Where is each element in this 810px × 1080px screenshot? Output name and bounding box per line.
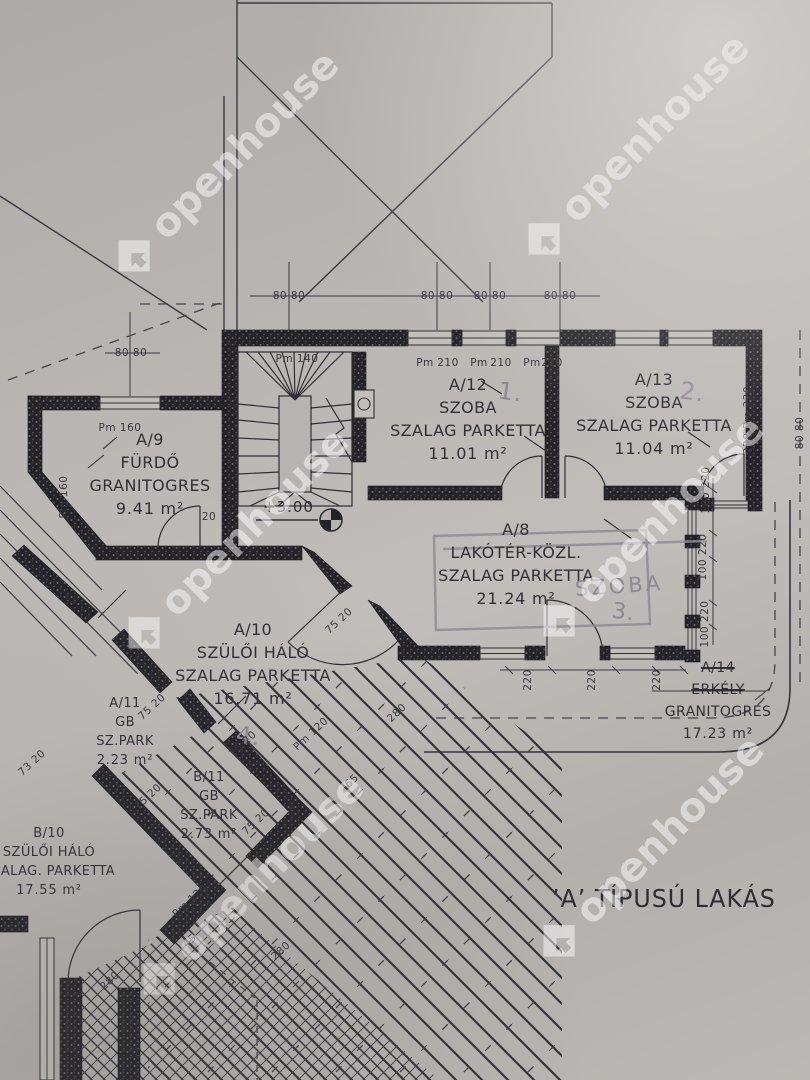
dimension-label: 80 80 [474, 290, 507, 302]
dimension-label: Pm 120 [291, 715, 331, 753]
pencil-note-1: 1. [496, 376, 525, 407]
dimension-label: 220 [522, 669, 534, 691]
room-id: A/10 [160, 618, 346, 641]
room-name: GB [82, 713, 168, 732]
room-finish: SZ.PARK [166, 806, 252, 825]
plan-title: ’A’ TÍPUSÚ LAKÁS [552, 884, 790, 913]
dimension-label: Pm [523, 357, 541, 369]
dimension-label: 100 220 [699, 601, 711, 648]
dimension-label: Pm 120 [170, 882, 210, 920]
openhouse-logo-icon [512, 206, 577, 271]
dimension-label: Pm [416, 357, 434, 369]
room-label-b11: B/11 GB SZ.PARK 2.73 m² [166, 768, 252, 844]
room-id: A/8 [428, 518, 604, 541]
room-name: FÜRDŐ [52, 451, 248, 474]
dimension-label: 45 [181, 932, 200, 951]
dimension-label: 280 [385, 701, 409, 724]
dimension-label: 220 [586, 669, 598, 691]
dimension-label: 210 [490, 357, 512, 369]
dimension-label: Pm 160 [99, 422, 142, 434]
dimension-label: 210 [541, 357, 563, 369]
room-name: SZOBA [574, 391, 734, 414]
dimension-label: Pm 160 [58, 476, 70, 519]
openhouse-logo-icon [102, 223, 167, 288]
watermark-text: openhouse [551, 25, 758, 232]
pencil-note-3: 3. [610, 599, 636, 627]
dimension-label: 65 [343, 772, 362, 791]
room-area: 16.71 m² [160, 687, 346, 710]
dimension-label: 220 [651, 669, 663, 691]
openhouse-logo-icon [127, 946, 192, 1011]
room-label-a14: A/14 ERKÉLY GRANITOGRES 17.23 m² [650, 657, 786, 745]
dimension-label: 80 80 [273, 290, 306, 302]
room-name: GB [166, 787, 252, 806]
watermark-text: openhouse [141, 42, 348, 249]
watermark: openhouse [527, 727, 774, 974]
room-label-a13: A/13 SZOBA SZALAG PARKETTA 11.04 m² [574, 368, 734, 460]
dimension-label: 80 80 [544, 290, 577, 302]
room-name: SZOBA [388, 396, 548, 419]
room-id: A/9 [52, 428, 248, 451]
room-label-a9: A/9 FÜRDŐ GRANITOGRES 9.41 m² [52, 428, 248, 520]
room-area: 17.23 m² [650, 723, 786, 745]
room-finish: SZ.PARK [82, 732, 168, 751]
room-area: 2.23 m² [82, 751, 168, 770]
room-id: B/11 [166, 768, 252, 787]
dimension-label: 280 [98, 969, 122, 992]
room-finish: GRANITOGRES [650, 701, 786, 723]
dimension-label: 75 20 [132, 782, 164, 813]
room-area: 9.41 m² [52, 497, 248, 520]
room-area: 17.55 m² [0, 881, 128, 900]
dimension-label: 100 220 [697, 534, 709, 581]
room-name: SZÜLŐI HÁLÓ [0, 843, 128, 862]
watermark: openhouse [512, 25, 759, 272]
dimension-label: Pm [470, 357, 488, 369]
room-finish: SZALAG PARKETTA [160, 664, 346, 687]
label-layer: A/9 FÜRDŐ GRANITOGRES 9.41 m² A/12 SZOBA… [0, 0, 810, 1080]
room-area: 11.01 m² [388, 442, 548, 465]
room-name: LAKÓTÉR-KÖZL. [428, 541, 604, 564]
room-label-a12: A/12 SZOBA SZALAG PARKETTA 11.01 m² [388, 373, 548, 465]
room-area: 11.04 m² [574, 437, 734, 460]
room-label-a10: A/10 SZÜLŐI HÁLÓ SZALAG PARKETTA 16.71 m… [160, 618, 346, 710]
watermark: openhouse [102, 42, 349, 289]
room-name: ERKÉLY [650, 679, 786, 701]
dimension-label: 73 20 [16, 748, 48, 779]
dimension-label: 280 [269, 939, 293, 962]
room-name: SZÜLŐI HÁLÓ [160, 641, 346, 664]
dimension-label: 20 [202, 511, 216, 523]
level-mark: +3.00 [263, 498, 314, 516]
room-finish: GRANITOGRES [52, 474, 248, 497]
room-label-b10: B/10 SZÜLŐI HÁLÓ SZALAG. PARKETTA 17.55 … [0, 824, 128, 900]
room-finish: SZALAG PARKETTA [388, 419, 548, 442]
dimension-label: 210 [437, 357, 459, 369]
room-id: B/10 [0, 824, 128, 843]
dimension-label: Pm 140 [276, 353, 319, 365]
dimension-label: 80 80 [115, 347, 148, 359]
pencil-note-szoba: SZOBA [574, 571, 663, 601]
openhouse-logo-icon [527, 908, 592, 973]
scanned-floor-plan: A/9 FÜRDŐ GRANITOGRES 9.41 m² A/12 SZOBA… [0, 0, 810, 1080]
dimension-label: 80 80 [794, 417, 806, 450]
pencil-note-2: 2. [678, 376, 707, 407]
room-finish: SZALAG. PARKETTA [0, 862, 128, 881]
dimension-label: 220 Pm 220 [742, 386, 754, 454]
room-finish: SZALAG PARKETTA [574, 414, 734, 437]
dimension-label: 100 220 [700, 467, 712, 514]
dimension-label: 80 80 [421, 290, 454, 302]
room-id: A/13 [574, 368, 734, 391]
room-id: A/14 [650, 657, 786, 679]
